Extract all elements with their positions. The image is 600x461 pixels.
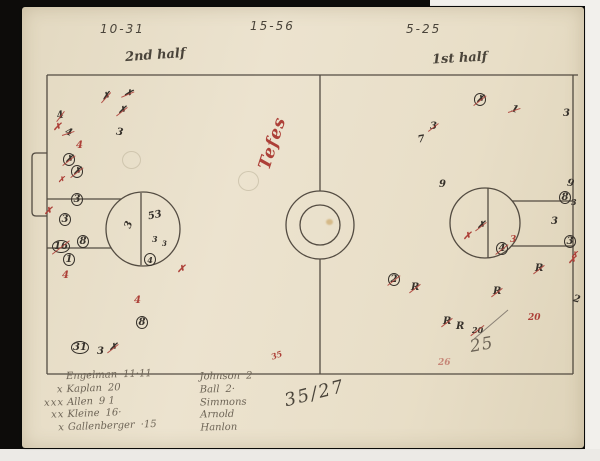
shot-mark-glyph: 8 [562,193,569,203]
shot-mark: R [493,287,501,297]
shot-mark-glyph: 8 [80,237,87,247]
shot-mark: ✗ [71,165,83,178]
player-name: Johnson [199,371,240,383]
player-number: 9 1 [99,395,115,407]
shot-mark-glyph: 4 [76,140,83,151]
shot-mark: 7 [417,134,426,145]
shot-mark-glyph: 7 [417,133,426,145]
shot-mark-glyph: 3 [97,346,104,357]
tally-marks: xxx [40,397,64,411]
shot-mark-glyph: 9 [566,177,575,189]
shot-mark: 8 [77,235,89,248]
tally-marks: xx [40,410,64,424]
shot-mark: ✗ [568,256,576,266]
shot-mark-glyph: 26 [438,358,451,368]
shot-mark: 3 [115,127,124,138]
shot-mark: ✗ [44,207,52,217]
shot-mark: 4 [144,253,156,266]
shot-mark: ✗ [53,123,61,133]
player-number: 16· [105,408,121,420]
shot-mark: 9 [439,180,446,190]
shot-mark: 4 [76,141,83,151]
shot-mark-glyph: 3 [567,237,574,247]
shot-mark-glyph: ✗ [53,122,61,133]
shot-mark: 4 [64,127,74,139]
shot-mark: ✗ [118,106,126,116]
shot-mark: ✗ [477,221,485,231]
shot-mark-glyph: 3 [571,197,577,207]
shot-mark: 4 [56,110,65,121]
shot-mark: 26 [438,359,451,368]
player-name: Engelman [66,369,118,382]
roster-row: Ball2· [200,383,253,397]
shot-mark: R [411,283,419,293]
shot-mark: 53 [147,210,163,223]
roster-left: Engelman11·11xKaplan20xxxAllen9 1xxKlein… [39,368,157,436]
shot-mark: 3 [510,236,516,245]
shot-mark: 3 [564,235,576,248]
shot-mark: 20 [472,326,483,334]
player-name: Gallenberger [68,420,135,433]
shot-mark: 3 [124,220,136,230]
shot-mark: ✗ [463,232,471,242]
shot-mark-glyph: 3 [115,126,124,138]
tally-marks: x [41,422,65,436]
tally-marks: x [39,384,63,398]
roster-middle: Johnson2Ball2·SimmonsArnoldHanlon [199,371,253,436]
shot-mark-glyph: 3 [563,108,570,119]
shot-mark-glyph: R [456,321,464,332]
shot-mark: 1 [510,104,520,116]
player-number: 2 [246,371,253,382]
shot-mark: 3 [152,235,158,243]
player-name: Kleine [67,408,100,420]
shot-mark: 3 [97,347,104,357]
shot-mark: 9 [566,178,575,189]
shot-mark: 4 [62,271,69,281]
shot-mark: ✗ [177,265,185,275]
player-name: Kaplan [66,383,102,395]
shot-mark-glyph: 3 [62,215,69,225]
shot-mark: R [443,317,451,327]
shot-mark: 4 [134,296,141,306]
shot-mark-glyph: 53 [147,209,163,223]
shot-mark: 3 [551,217,558,227]
shot-mark-glyph: 3 [551,216,558,227]
shot-mark-glyph: 3 [74,195,81,205]
pencil-corner-note: 25 [469,335,495,356]
roster-row: Simmons [200,396,253,410]
player-number: 11·11 [123,368,152,380]
shot-mark-glyph: ✗ [44,206,52,217]
shot-mark-glyph: 3 [123,220,136,230]
shot-mark: 3 [563,109,570,119]
shot-mark: 1 [63,253,75,266]
shot-mark-glyph: 20 [528,313,541,323]
shot-mark-glyph: 3 [152,234,158,244]
player-number: 2· [225,384,235,395]
shot-mark-glyph: ✗ [58,174,65,184]
shot-mark-glyph: 35 [270,348,284,361]
scan-margin-right [585,0,600,461]
shot-mark: 20 [528,314,541,323]
shot-mark: 4 [496,242,508,255]
scan-margin-bottom [0,449,600,461]
shot-mark: 35 [270,349,283,360]
shot-mark: ✗ [63,153,75,166]
shot-mark: 3 [59,213,71,226]
shot-mark: 16 [52,240,70,253]
roster-row: Johnson2 [199,371,252,385]
shot-mark-glyph: 2 [572,293,582,305]
shot-mark: 3 [71,193,83,206]
shot-mark-glyph: 3 [510,235,516,245]
shot-mark-glyph: 4 [62,270,69,281]
shot-mark: 3 [571,198,577,206]
shot-mark-glyph: 4 [147,256,153,264]
player-number: ·15 [141,419,157,431]
shot-mark-glyph: 4 [134,295,141,306]
shot-mark: ✗ [123,88,134,100]
shot-mark: 2 [388,273,400,286]
shot-mark: ✗ [109,343,117,353]
shot-mark-glyph: 1 [66,255,73,265]
shot-mark-glyph: ✗ [463,231,471,242]
shot-mark: ✗ [474,93,486,106]
shot-mark: 8 [559,191,571,204]
shot-mark: R [535,264,543,274]
player-name: Allen [67,396,93,408]
shot-mark-glyph: ✗ [568,255,576,266]
shot-mark-glyph: 31 [73,343,87,353]
tally-marks [39,379,63,380]
scanned-photo: 10-31 15-56 5-25 2nd half 1st half [0,0,600,461]
shot-chart-paper: 10-31 15-56 5-25 2nd half 1st half [22,7,584,448]
shot-mark: 3 [162,240,167,247]
shot-mark-glyph: 3 [162,239,167,248]
shot-mark-glyph: ✗ [177,264,185,275]
player-number: 20 [108,382,121,393]
shot-mark: 2 [572,294,581,305]
shot-mark: ✗ [101,91,111,102]
player-name: Arnold [200,409,234,421]
shot-mark: 31 [71,341,89,354]
player-name: Ball [200,384,220,395]
shot-mark: R [456,322,464,332]
player-name: Hanlon [200,422,237,434]
shot-mark-glyph: 9 [439,179,446,190]
shot-mark-glyph: 8 [139,318,146,328]
roster-row: Arnold [200,409,253,423]
roster-row: Hanlon [200,422,253,436]
scan-margin-top [430,0,600,6]
shot-mark: 3 [430,122,437,132]
shot-mark: 8 [136,316,148,329]
shot-mark: ✗ [58,175,65,183]
player-name: Simmons [200,396,247,408]
